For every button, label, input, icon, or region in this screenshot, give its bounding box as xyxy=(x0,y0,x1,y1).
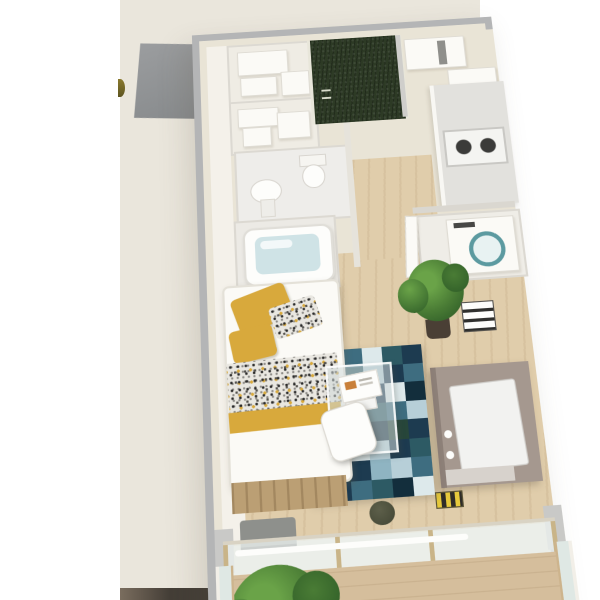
rug-cell xyxy=(391,457,413,478)
washer-door-icon xyxy=(467,230,507,268)
door-handle xyxy=(322,97,331,99)
rug-cell xyxy=(403,362,425,382)
rug-cell xyxy=(408,418,430,438)
storage-box xyxy=(277,110,312,139)
apartment-3d-plan xyxy=(192,17,577,600)
rug-cell xyxy=(392,477,414,498)
drawer-knob xyxy=(446,451,455,460)
toilet-icon xyxy=(299,154,326,189)
rug-cell xyxy=(372,478,394,499)
bathroom xyxy=(234,144,355,225)
rug-cell xyxy=(404,381,426,401)
rug-cell xyxy=(370,459,392,480)
drawer-knob xyxy=(444,430,453,439)
rug-cell xyxy=(413,475,435,496)
towel-stack xyxy=(461,300,497,332)
fridge xyxy=(403,36,467,71)
apartment-unit xyxy=(192,17,577,600)
sink-icon xyxy=(250,178,284,220)
closet-upper xyxy=(227,41,317,107)
pot xyxy=(425,318,451,339)
rug-cell xyxy=(409,437,431,458)
door-handle xyxy=(321,89,330,91)
rug-cell xyxy=(406,399,428,419)
storage-box xyxy=(237,107,279,129)
entrance-door xyxy=(307,35,409,125)
yellow-object xyxy=(435,490,464,509)
washer-slot xyxy=(453,222,475,229)
floorplan-render xyxy=(0,0,600,600)
rug-cell xyxy=(350,460,372,481)
closet-shelf xyxy=(280,70,310,96)
closet-shelf xyxy=(240,76,278,97)
stove-icon xyxy=(442,127,508,168)
rug-cell xyxy=(351,480,373,501)
railing-right xyxy=(554,541,590,600)
stand-shelf xyxy=(445,465,515,485)
rug-cell xyxy=(401,344,422,363)
storage-box xyxy=(242,126,272,147)
tv-stand xyxy=(430,361,543,488)
tv-icon xyxy=(448,378,529,473)
rug-cell xyxy=(411,456,433,477)
